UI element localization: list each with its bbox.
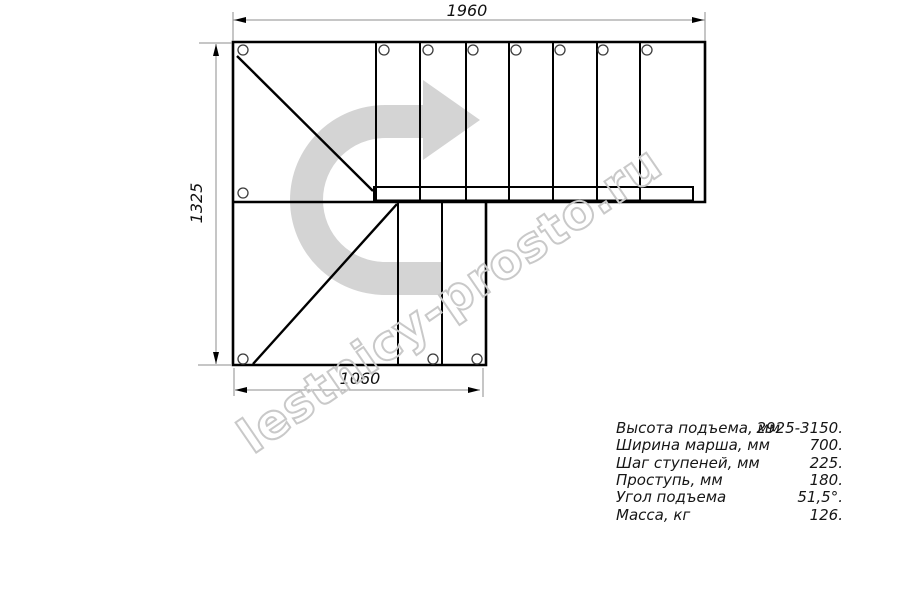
dimension-top: 1960 [233, 1, 705, 41]
dim-arrow-icon [692, 17, 704, 23]
spec-value: 51,5°. [797, 488, 843, 506]
specs-table: Высота подъема, мм 2925-3150. Ширина мар… [616, 419, 843, 524]
dim-arrow-icon [234, 17, 246, 23]
spec-value: 700. [810, 436, 843, 454]
staircase-drawing-page: 1960 1325 1060 Высота подъема, мм 2925-3… [0, 0, 900, 600]
dim-left-label: 1325 [187, 183, 206, 224]
spec-label: Ширина марша, мм [616, 436, 770, 454]
spec-value: 180. [810, 471, 843, 489]
spec-value: 2925-3150. [756, 419, 843, 437]
spec-label: Масса, кг [616, 506, 690, 524]
spec-value: 225. [810, 454, 843, 472]
spec-label: Шаг ступеней, мм [616, 454, 760, 472]
dimension-left: 1325 [187, 43, 232, 365]
dim-arrow-icon [213, 352, 219, 364]
dim-arrow-icon [235, 387, 247, 393]
spec-value: 126. [810, 506, 843, 524]
staircase-plan-svg: 1960 1325 1060 Высота подъема, мм 2925-3… [0, 0, 900, 600]
dim-arrow-icon [213, 44, 219, 56]
spec-label: Проступь, мм [616, 471, 723, 489]
dim-top-label: 1960 [447, 1, 488, 20]
spec-label: Угол подъема [616, 488, 726, 506]
dim-arrow-icon [468, 387, 480, 393]
